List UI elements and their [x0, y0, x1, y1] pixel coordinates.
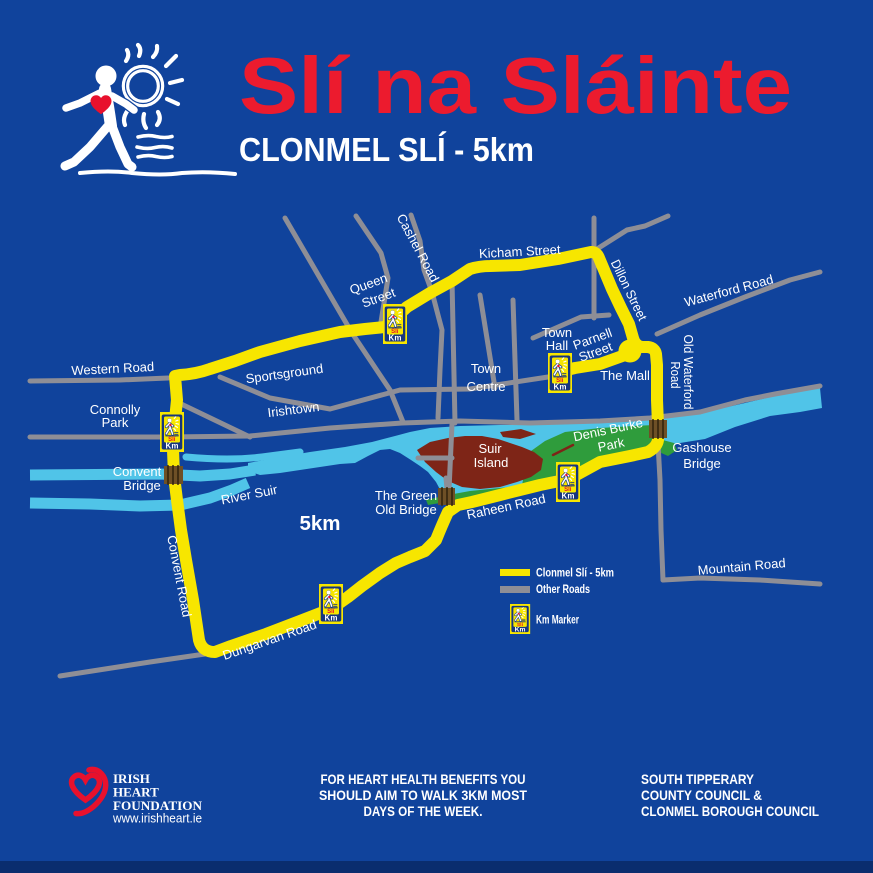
svg-text:www.irishheart.ie: www.irishheart.ie	[112, 812, 202, 826]
svg-text:Bridge: Bridge	[683, 456, 721, 471]
svg-text:The Mall: The Mall	[600, 368, 650, 383]
svg-text:DAYS OF THE WEEK.: DAYS OF THE WEEK.	[364, 803, 483, 819]
svg-text:CLONMEL BOROUGH COUNCIL: CLONMEL BOROUGH COUNCIL	[641, 803, 819, 819]
svg-text:Gashouse: Gashouse	[672, 440, 731, 455]
svg-text:Suir: Suir	[478, 441, 502, 456]
svg-text:Park: Park	[102, 415, 129, 430]
svg-text:Hall: Hall	[546, 338, 569, 353]
svg-text:SHOULD AIM TO WALK 3KM MOST: SHOULD AIM TO WALK 3KM MOST	[319, 787, 527, 803]
svg-text:5km: 5km	[299, 512, 340, 535]
svg-text:FOR HEART HEALTH BENEFITS YOU: FOR HEART HEALTH BENEFITS YOU	[321, 771, 526, 787]
svg-text:COUNTY COUNCIL &: COUNTY COUNCIL &	[641, 787, 762, 803]
svg-text:Bridge: Bridge	[123, 478, 161, 493]
svg-text:Road: Road	[668, 362, 683, 389]
svg-text:Clonmel Slí - 5km: Clonmel Slí - 5km	[536, 566, 614, 580]
svg-text:CLONMEL SLÍ - 5km: CLONMEL SLÍ - 5km	[239, 131, 534, 168]
svg-text:Old Bridge: Old Bridge	[375, 502, 436, 517]
svg-text:Other Roads: Other Roads	[536, 582, 590, 596]
svg-text:Island: Island	[474, 455, 509, 470]
svg-text:Convent: Convent	[113, 464, 162, 479]
svg-text:Town: Town	[471, 361, 501, 376]
svg-text:Km Marker: Km Marker	[536, 613, 579, 627]
svg-text:Centre: Centre	[466, 379, 505, 394]
svg-text:SOUTH TIPPERARY: SOUTH TIPPERARY	[641, 771, 755, 787]
svg-text:The Green: The Green	[375, 488, 437, 503]
svg-text:Slí na Sláinte: Slí na Sláinte	[239, 41, 792, 130]
